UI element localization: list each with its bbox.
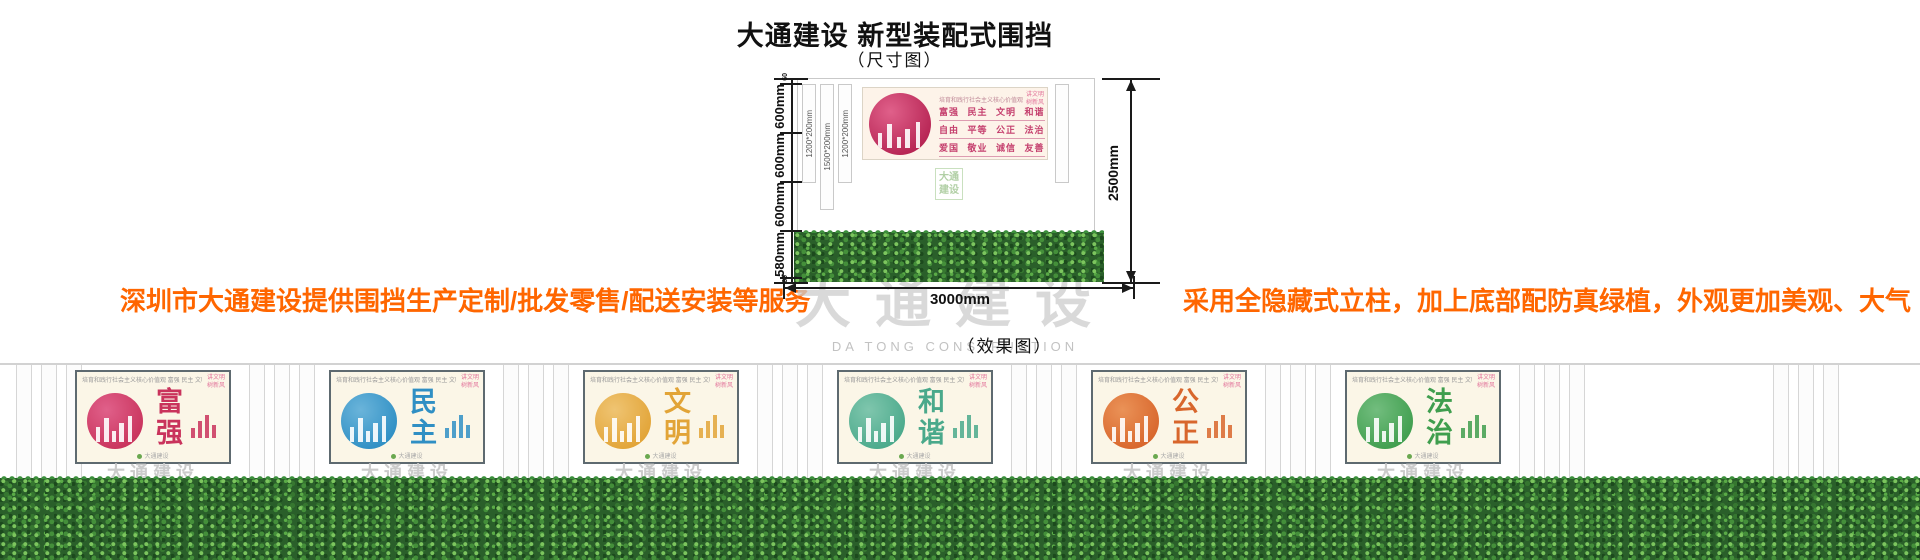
theme-circle-graphic: [1357, 393, 1413, 449]
post-label: 1500*200mm: [823, 123, 832, 171]
fence-post: [807, 365, 823, 480]
values-row: 自由 平等 公正 法治: [939, 124, 1045, 139]
theme-circle-graphic: [341, 393, 397, 449]
fence-post: [249, 365, 265, 480]
panel-word: 文明: [661, 387, 688, 449]
post-1200-b: 1200*200mm: [838, 84, 852, 183]
dimension-figure: 1200*200mm 1500*200mm 1200*200mm 培育和践行社会…: [750, 70, 1180, 320]
theme-circle-graphic: [849, 393, 905, 449]
bar-chart-icon: [1207, 415, 1232, 438]
poster: 大通建设 新型装配式围挡 （尺寸图） 深圳市大通建设提供围挡生产定制/批发零售/…: [0, 0, 1920, 560]
panel-header: 培育和践行社会主义核心价值观 富强 民主 文明 和谐 公正 法治 爱国 敬业 诚…: [336, 375, 456, 384]
corner-line: 讲文明: [1026, 92, 1044, 100]
corner-line: 树新风: [1223, 383, 1241, 391]
seg-60-label: 60: [782, 73, 789, 81]
panel-word: 和谐: [915, 387, 942, 449]
seg-600-label: 600mm: [772, 133, 787, 178]
effect-fence: 培育和践行社会主义核心价值观 富强 民主 文明 和谐 公正 法治 爱国 敬业 诚…: [0, 363, 1920, 480]
panel-corner-slogan: 讲文明 树新风: [1223, 375, 1241, 390]
fence-post: [16, 365, 32, 480]
corner-line: 讲文明: [715, 375, 733, 383]
post-group: [1519, 365, 1585, 480]
post-group: [1011, 365, 1077, 480]
skyline-icon: [1366, 414, 1404, 442]
fence-post: [757, 365, 773, 480]
corner-line: 讲文明: [1477, 375, 1495, 383]
theme-circle-graphic: [87, 393, 143, 449]
post-group: [1773, 365, 1839, 480]
post-group: [757, 365, 823, 480]
bar-chart-icon: [1461, 415, 1486, 438]
banner-corner-slogan: 讲文明 树新风: [1026, 92, 1044, 108]
panel-header: 培育和践行社会主义核心价值观 富强 民主 文明 和谐 公正 法治 爱国 敬业 诚…: [590, 375, 710, 384]
fence-post: [528, 365, 544, 480]
fence-post: [1011, 365, 1027, 480]
fence-post: [274, 365, 290, 480]
panel-minzhu: 培育和践行社会主义核心价值观 富强 民主 文明 和谐 公正 法治 爱国 敬业 诚…: [329, 370, 485, 464]
fence-post: [1773, 365, 1789, 480]
fence-post: [782, 365, 798, 480]
post-1500: 1500*200mm: [820, 84, 834, 210]
seg-600-label: 600mm: [772, 182, 787, 227]
fence-post: [553, 365, 569, 480]
effect-hedge: [0, 478, 1920, 560]
post-group: [503, 365, 569, 480]
fence-post: [1290, 365, 1306, 480]
fence-post: [1519, 365, 1535, 480]
arrow-up-icon: [1126, 80, 1136, 91]
panel-word: 公正: [1169, 387, 1196, 449]
city-circle-graphic: [869, 93, 931, 155]
corner-line: 讲文明: [969, 375, 987, 383]
dim-tick: [774, 78, 808, 80]
corner-line: 讲文明: [1223, 375, 1241, 383]
values-row: 富强 民主 文明 和谐: [939, 106, 1045, 121]
dimension-hedge: [794, 232, 1104, 282]
post-group: [249, 365, 315, 480]
height-dim-line: [1130, 78, 1132, 284]
skyline-icon: [858, 414, 896, 442]
skyline-icon: [96, 414, 134, 442]
skyline-icon: [350, 414, 388, 442]
fence-post: [1823, 365, 1839, 480]
watermark-en: DA TONG CONSTRUCTION: [655, 339, 1255, 354]
values-row: 爱国 敬业 诚信 友善: [939, 142, 1045, 157]
bar-chart-icon: [445, 415, 470, 438]
panel-corner-slogan: 讲文明 树新风: [207, 375, 225, 390]
skyline-icon: [878, 120, 922, 148]
panel-hexie: 培育和践行社会主义核心价值观 富强 民主 文明 和谐 公正 法治 爱国 敬业 诚…: [837, 370, 993, 464]
panel-header: 培育和践行社会主义核心价值观 富强 民主 文明 和谐 公正 法治 爱国 敬业 诚…: [1352, 375, 1472, 384]
post-label: 1200*200mm: [805, 110, 814, 158]
bar-chart-icon: [699, 415, 724, 438]
panel-header: 培育和践行社会主义核心价值观 富强 民主 文明 和谐 公正 法治 爱国 敬业 诚…: [1098, 375, 1218, 384]
post-group: [16, 365, 82, 480]
fence-post: [1569, 365, 1585, 480]
corner-line: 树新风: [1477, 383, 1495, 391]
theme-circle-graphic: [595, 393, 651, 449]
fence-post: [299, 365, 315, 480]
fence-post: [1036, 365, 1052, 480]
post-group: [1265, 365, 1331, 480]
fence-post: [503, 365, 519, 480]
green-logo-box: 大通建设: [935, 168, 963, 200]
fence-post: [1315, 365, 1331, 480]
corner-line: 树新风: [969, 383, 987, 391]
fence-post: [1544, 365, 1560, 480]
corner-line: 讲文明: [207, 375, 225, 383]
post-1200: 1200*200mm: [802, 84, 816, 183]
fence-post: [41, 365, 57, 480]
post-label: 1200*200mm: [841, 110, 850, 158]
panel-word: 法治: [1423, 387, 1450, 449]
panel-fazhi: 培育和践行社会主义核心价值观 富强 民主 文明 和谐 公正 法治 爱国 敬业 诚…: [1345, 370, 1501, 464]
feature-note: 采用全隐藏式立柱，加上底部配防真绿植，外观更加美观、大气: [1183, 281, 1911, 318]
panel-fuqiang: 培育和践行社会主义核心价值观 富强 民主 文明 和谐 公正 法治 爱国 敬业 诚…: [75, 370, 231, 464]
dimension-figure-caption: （尺寸图）: [848, 46, 943, 71]
panel-gongzheng: 培育和践行社会主义核心价值观 富强 民主 文明 和谐 公正 法治 爱国 敬业 诚…: [1091, 370, 1247, 464]
seg-600-label: 600mm: [772, 84, 787, 129]
panel-corner-slogan: 讲文明 树新风: [715, 375, 733, 390]
corner-line: 树新风: [461, 383, 479, 391]
skyline-icon: [1112, 414, 1150, 442]
theme-circle-graphic: [1103, 393, 1159, 449]
width-dim-line: [783, 287, 1135, 289]
values-banner: 培育和践行社会主义核心价值观 富强 民主 文明 和谐 自由 平等 公正 法治 爱…: [862, 87, 1048, 160]
bar-chart-icon: [953, 415, 978, 438]
seg-580-label: 580mm: [772, 232, 787, 277]
fence-post: [1798, 365, 1814, 480]
fence-post: [1061, 365, 1077, 480]
effect-figure-caption: （效果图）: [958, 332, 1053, 357]
fence-post: [1265, 365, 1281, 480]
height-label: 2500mm: [1105, 145, 1121, 201]
bar-chart-icon: [191, 415, 216, 438]
panel-corner-slogan: 讲文明 树新风: [461, 375, 479, 390]
panel-header: 培育和践行社会主义核心价值观 富强 民主 文明 和谐 公正 法治 爱国 敬业 诚…: [82, 375, 202, 384]
panel-header: 培育和践行社会主义核心价值观 富强 民主 文明 和谐 公正 法治 爱国 敬业 诚…: [844, 375, 964, 384]
width-label: 3000mm: [750, 291, 1170, 308]
skyline-icon: [604, 414, 642, 442]
panel-corner-slogan: 讲文明 树新风: [969, 375, 987, 390]
panel-word: 民主: [407, 387, 434, 449]
panel-wenming: 培育和践行社会主义核心价值观 富强 民主 文明 和谐 公正 法治 爱国 敬业 诚…: [583, 370, 739, 464]
corner-line: 树新风: [1026, 100, 1044, 108]
corner-line: 树新风: [715, 383, 733, 391]
corner-line: 讲文明: [461, 375, 479, 383]
panel-word: 富强: [153, 387, 180, 449]
post-right: [1055, 84, 1069, 183]
corner-line: 树新风: [207, 383, 225, 391]
panel-corner-slogan: 讲文明 树新风: [1477, 375, 1495, 390]
